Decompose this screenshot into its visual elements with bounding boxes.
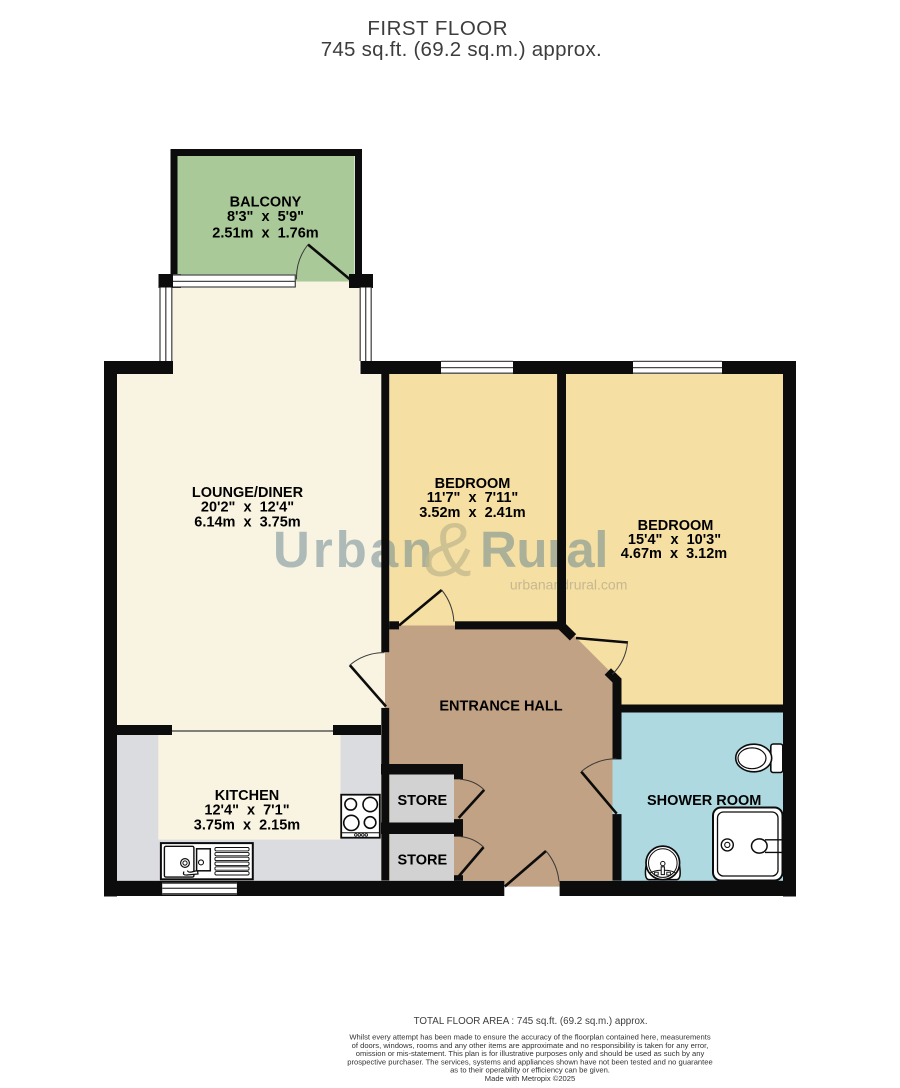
svg-text:BALCONY: BALCONY bbox=[230, 194, 302, 210]
svg-text:6.14m x 3.75m: 6.14m x 3.75m bbox=[194, 514, 300, 530]
svg-text:12'4" x 7'1": 12'4" x 7'1" bbox=[204, 802, 289, 818]
svg-text:FIRST FLOOR: FIRST FLOOR bbox=[367, 17, 508, 40]
svg-text:LOUNGE/DINER: LOUNGE/DINER bbox=[192, 485, 304, 501]
svg-text:3.75m x 2.15m: 3.75m x 2.15m bbox=[194, 818, 300, 834]
svg-text:urbanandrural.com: urbanandrural.com bbox=[510, 576, 628, 592]
svg-text:STORE: STORE bbox=[397, 793, 447, 809]
svg-text:11'7" x 7'11": 11'7" x 7'11" bbox=[427, 490, 519, 506]
svg-text:SHOWER ROOM: SHOWER ROOM bbox=[647, 793, 761, 809]
svg-text:TOTAL FLOOR AREA : 745 sq.ft.: TOTAL FLOOR AREA : 745 sq.ft. (69.2 sq.m… bbox=[414, 1016, 648, 1027]
svg-text:STORE: STORE bbox=[397, 853, 447, 869]
svg-text:4.67m x 3.12m: 4.67m x 3.12m bbox=[621, 546, 727, 562]
svg-text:745 sq.ft. (69.2 sq.m.) approx: 745 sq.ft. (69.2 sq.m.) approx. bbox=[321, 38, 602, 61]
svg-text:8'3" x 5'9": 8'3" x 5'9" bbox=[227, 209, 304, 225]
svg-text:Rural: Rural bbox=[480, 521, 608, 578]
svg-text:Made with Metropix ©2025: Made with Metropix ©2025 bbox=[485, 1074, 575, 1083]
svg-text:3.52m x 2.41m: 3.52m x 2.41m bbox=[419, 505, 525, 521]
svg-text:2.51m x 1.76m: 2.51m x 1.76m bbox=[212, 225, 318, 241]
svg-text:ENTRANCE HALL: ENTRANCE HALL bbox=[439, 699, 562, 715]
svg-text:20'2" x 12'4": 20'2" x 12'4" bbox=[201, 500, 294, 516]
